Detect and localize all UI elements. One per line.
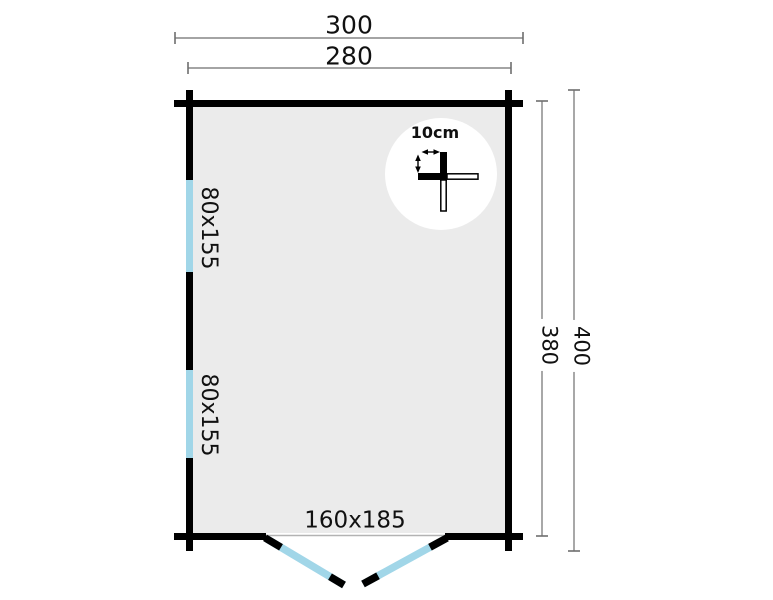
door-leaf-left	[265, 538, 344, 585]
wall-left	[186, 90, 193, 551]
wall-detail-cross-horizontal-solid	[418, 173, 447, 180]
wall-detail-cross-horizontal-outline	[447, 174, 478, 179]
door-size-label: 160x185	[304, 510, 405, 533]
floor-plan-canvas: 300 280 380 400 80x155 80x155 160x185 10…	[0, 0, 773, 600]
wall-detail-cross-vertical-outline	[441, 180, 446, 211]
wall-right	[505, 90, 512, 551]
window-left-top	[186, 180, 193, 272]
door-leaf-right	[363, 538, 447, 584]
wall-thickness-label: 10cm	[411, 125, 459, 141]
dim-label-inner-depth: 380	[537, 319, 562, 371]
dim-label-outer-depth: 400	[569, 320, 594, 372]
dim-label-outer-width: 300	[325, 13, 373, 38]
window-bottom-size-label: 80x155	[197, 373, 219, 456]
wall-bottom-right-segment	[445, 533, 523, 540]
window-top-size-label: 80x155	[197, 186, 219, 269]
dim-label-inner-width: 280	[325, 44, 373, 69]
wall-top	[174, 100, 523, 107]
wall-bottom-left-segment	[174, 533, 266, 540]
window-left-bottom	[186, 370, 193, 458]
